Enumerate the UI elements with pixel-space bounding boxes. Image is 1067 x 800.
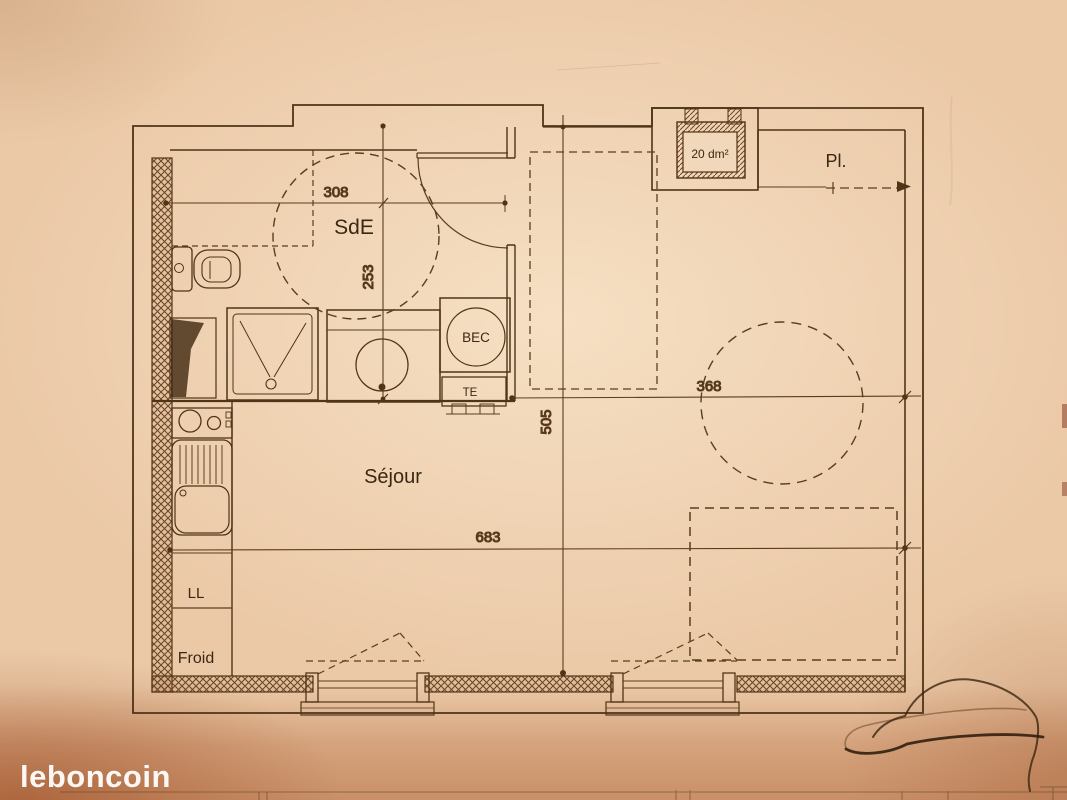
dimension-683: 683 (167, 529, 921, 554)
washing-machine-label: LL (188, 585, 205, 602)
closet-pl: Pl. (758, 130, 911, 194)
dim-253-label: 253 (360, 264, 377, 289)
turning-circle-living (701, 322, 863, 484)
bed-outline (690, 508, 897, 660)
kitchen-sink (172, 440, 232, 535)
duct-block: 20 dm² (652, 108, 758, 190)
floorplan-photo: 20 dm² Pl. (0, 0, 1067, 800)
bathroom-clear-zone (172, 150, 313, 246)
window-opening-dashes (611, 633, 737, 674)
paper-artifacts (557, 63, 1067, 496)
window-right (606, 633, 739, 715)
pen-scribble (845, 679, 1043, 791)
window-left (301, 633, 434, 715)
dimension-308: 308 (163, 184, 508, 212)
dark-cupboard (170, 318, 216, 398)
bathroom-label: SdE (334, 216, 374, 239)
cooktop (172, 408, 232, 438)
te-label: TE (463, 387, 478, 399)
next-plan-edge (60, 787, 1067, 800)
dimension-368: 368 (509, 378, 921, 403)
entry-clear-zone (530, 152, 657, 389)
water-heater-label: BEC (462, 330, 490, 345)
te-unit: TE (442, 377, 506, 414)
closet-label: Pl. (825, 151, 846, 171)
dim-308-label: 308 (323, 184, 348, 201)
water-heater-bec: BEC (440, 298, 510, 372)
toilet (172, 247, 240, 291)
faucet-dot (379, 384, 386, 391)
leboncoin-watermark: leboncoin (20, 759, 171, 794)
floorplan-drawing: 20 dm² Pl. (0, 0, 1067, 800)
dim-368-label: 368 (696, 378, 721, 395)
dim-683-label: 683 (475, 529, 500, 546)
door-leaf (417, 153, 508, 158)
duct-stub (685, 109, 698, 124)
fridge-label: Froid (178, 650, 214, 667)
kitchenette: LL Froid (172, 401, 232, 676)
window-opening-dashes (306, 633, 424, 674)
left-wall-hatched (152, 158, 172, 692)
closet-arrow (897, 181, 911, 192)
shower (227, 308, 318, 400)
outer-wall-outline (133, 105, 923, 713)
dim-505-label: 505 (538, 409, 555, 434)
dimension-505: 505 (538, 115, 570, 676)
bottom-wall-hatched (152, 676, 905, 692)
living-room-label: Séjour (364, 466, 422, 488)
bathroom-east-wall (507, 127, 515, 401)
duct-area-label: 20 dm² (691, 147, 728, 161)
top-wall (170, 127, 652, 150)
dimension-253: 253 (360, 123, 388, 404)
duct-stub (728, 109, 741, 124)
